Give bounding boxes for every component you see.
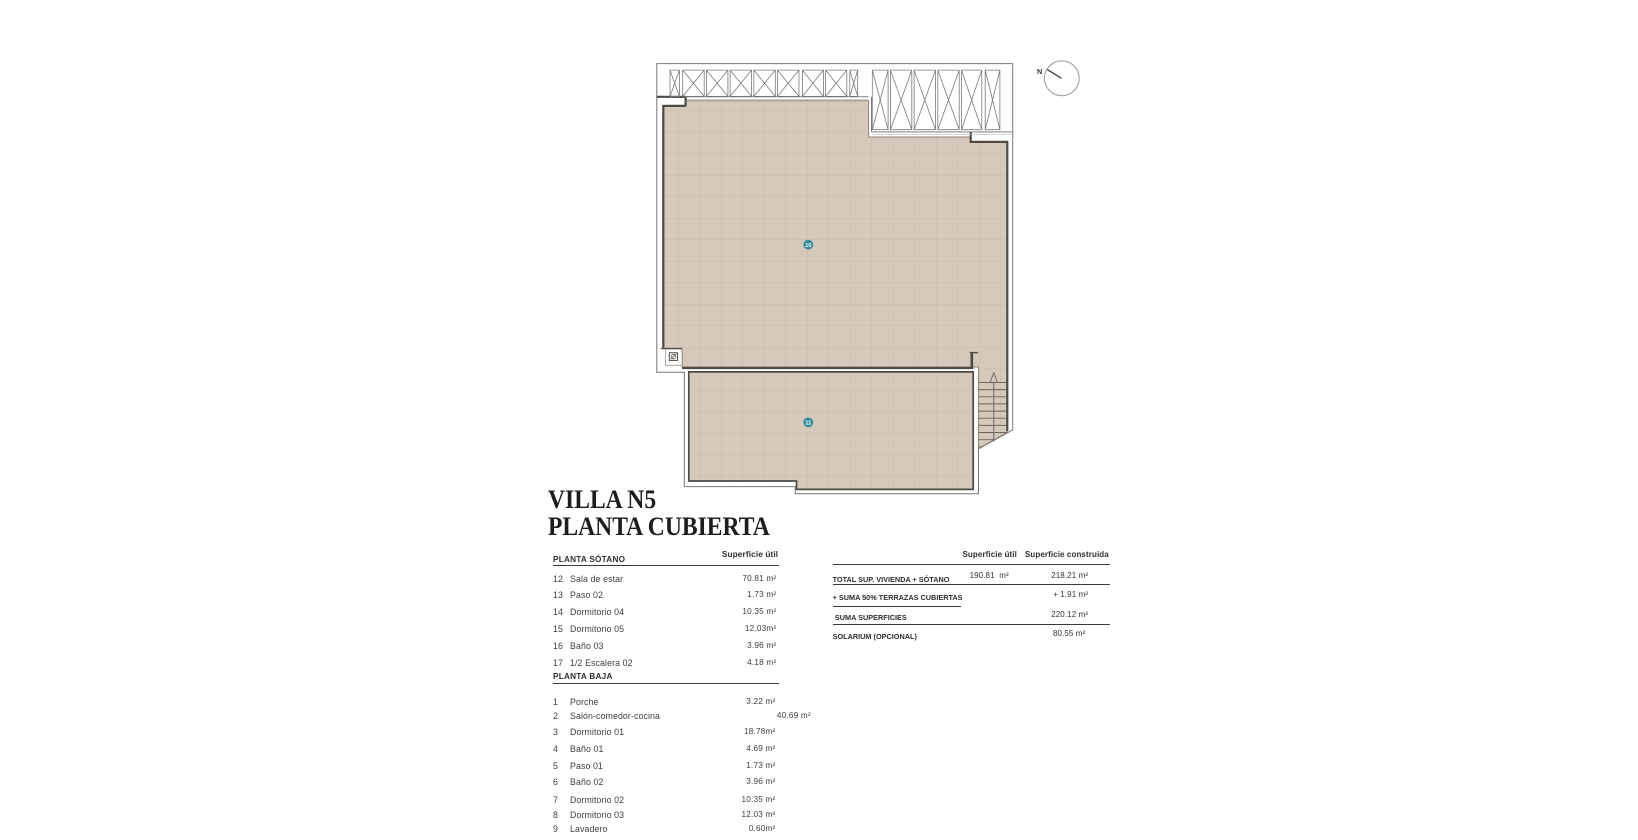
svg-text:N: N (1037, 67, 1042, 76)
svg-text:10: 10 (805, 243, 811, 249)
svg-text:11: 11 (805, 421, 812, 427)
